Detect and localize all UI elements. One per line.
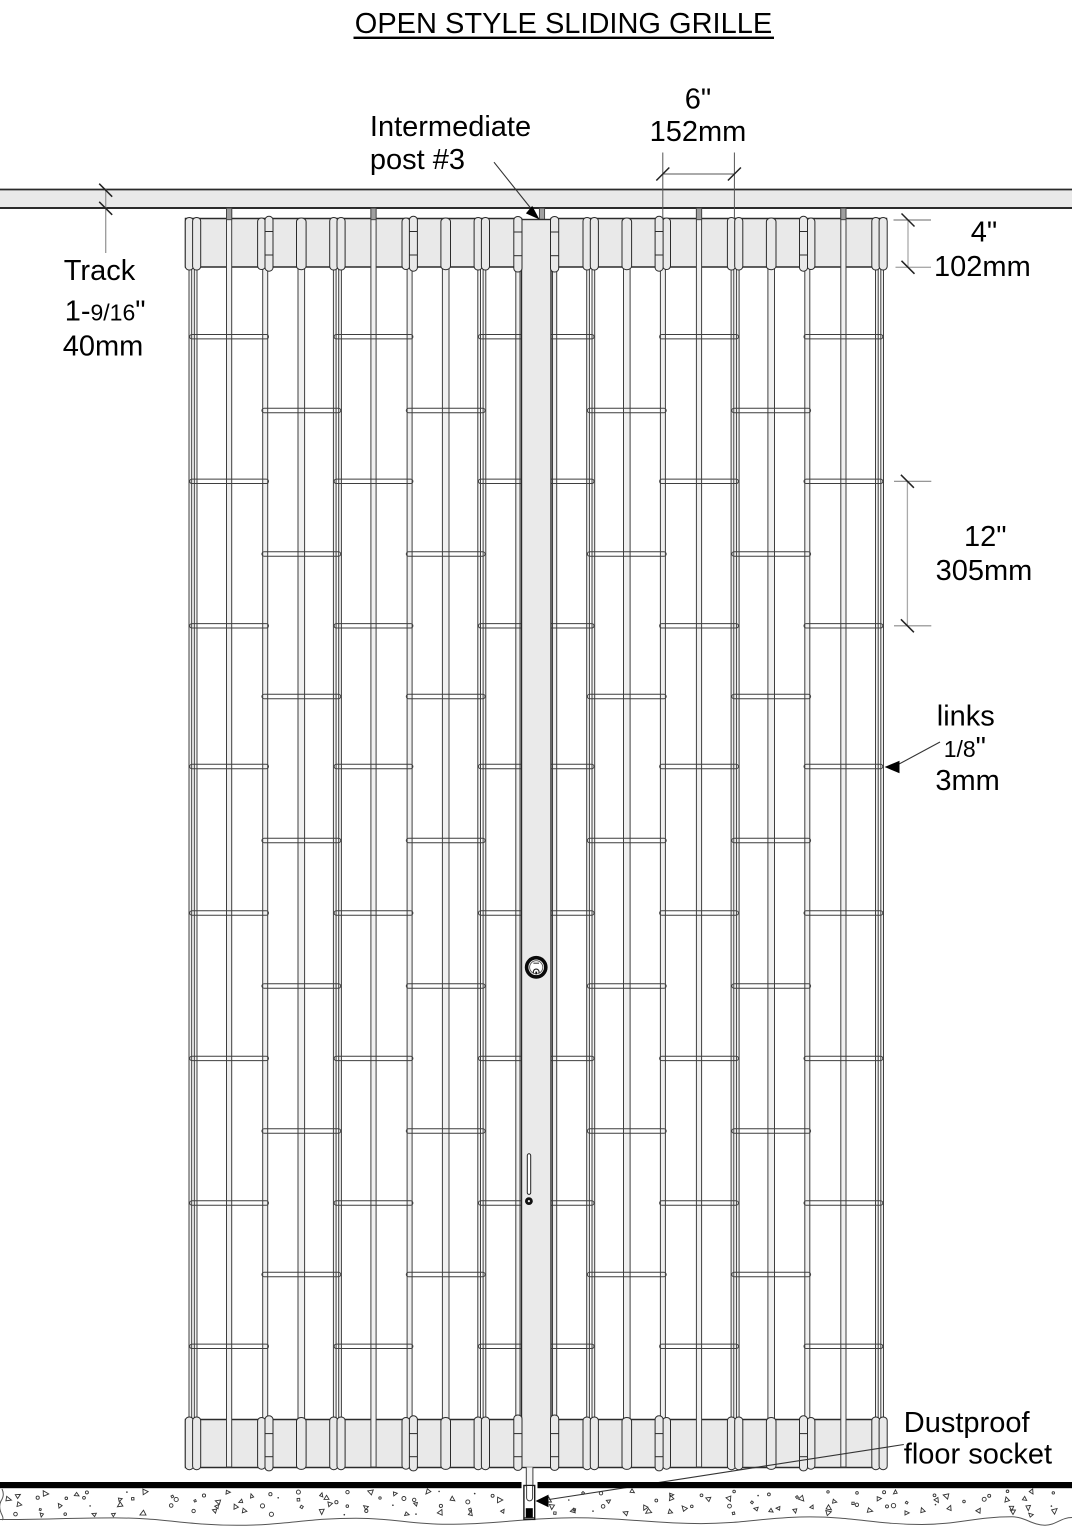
svg-text:floor socket: floor socket [904, 1439, 1052, 1471]
svg-text:Track: Track [64, 255, 136, 287]
svg-text:40mm: 40mm [63, 331, 144, 363]
svg-text:6": 6" [685, 83, 711, 115]
svg-text:1/8": 1/8" [944, 732, 986, 764]
svg-text:Intermediate: Intermediate [370, 111, 531, 143]
svg-text:152mm: 152mm [650, 116, 747, 148]
svg-text:Dustproof: Dustproof [904, 1407, 1031, 1439]
svg-text:3mm: 3mm [935, 765, 999, 797]
svg-text:post #3: post #3 [370, 144, 465, 176]
svg-text:305mm: 305mm [936, 555, 1033, 587]
svg-text:102mm: 102mm [934, 251, 1031, 283]
svg-text:12": 12" [964, 521, 1007, 553]
svg-text:4": 4" [971, 216, 997, 248]
svg-text:1-9/16": 1-9/16" [65, 295, 146, 327]
svg-text:OPEN STYLE SLIDING GRILLE: OPEN STYLE SLIDING GRILLE [355, 8, 772, 40]
svg-text:links: links [937, 701, 995, 733]
